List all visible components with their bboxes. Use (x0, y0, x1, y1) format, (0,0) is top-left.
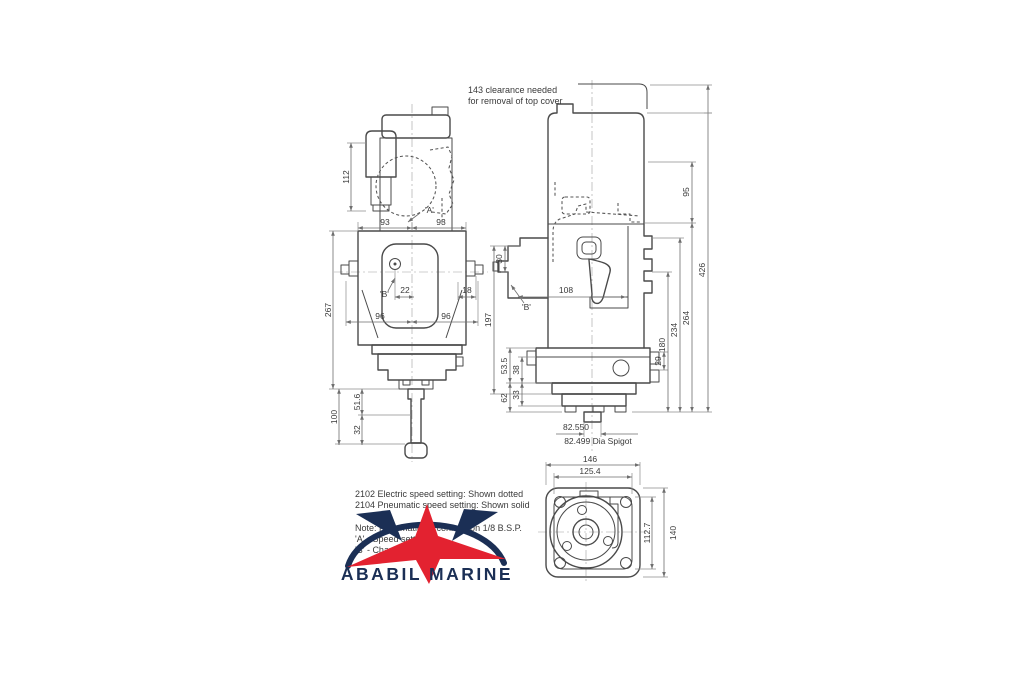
notes-line2: 2104 Pneumatic speed setting: Shown soli… (355, 500, 530, 510)
side-ext-left-lower (506, 348, 562, 412)
front-shaft-cap (405, 443, 427, 458)
side-label-234: 234 (669, 323, 679, 337)
bottom-bolt-hole-1 (578, 506, 587, 515)
side-label-29: 29 (653, 356, 663, 366)
front-label-112: 112 (341, 170, 351, 184)
front-left-pin (341, 265, 349, 274)
side-label-264: 264 (681, 311, 691, 325)
front-label-96-right: 96 (441, 311, 451, 321)
front-label-ref-b: 'B' (380, 289, 389, 299)
side-flange (536, 348, 650, 383)
side-lower-housing-lower (562, 394, 626, 406)
front-label-267: 267 (323, 303, 333, 317)
side-sight-boss-inner (582, 242, 596, 254)
front-base-flange (372, 345, 462, 354)
front-right-pin (475, 265, 483, 274)
front-stepped-base (378, 354, 456, 380)
front-pneumatic-cylinder-foot (373, 205, 389, 211)
watermark-logo: ABABIL MARINE (341, 504, 513, 584)
side-label-spigot-lower: 82.499 Dia Spigot (564, 436, 632, 446)
bottom-corner-hole-tr (621, 497, 632, 508)
side-foot-3 (615, 406, 626, 412)
side-label-30: 30 (494, 254, 504, 264)
front-label-93-right: 93 (436, 217, 446, 227)
side-right-lug-lower (650, 370, 659, 382)
front-ext-bottom (335, 415, 411, 444)
front-top-cover (382, 115, 450, 138)
front-plate-lug-right (422, 380, 429, 385)
front-plate-lug-left (403, 380, 410, 385)
side-lower-housing-upper (552, 383, 636, 394)
watermark-brand-text: ABABIL MARINE (341, 564, 513, 584)
side-sight-boss (577, 237, 601, 259)
front-label-32: 32 (352, 425, 362, 435)
side-label-108: 108 (559, 285, 573, 295)
clearance-note: 143 clearance needed for removal of top … (468, 85, 563, 106)
side-dashed-step (618, 203, 640, 222)
bottom-label-140: 140 (668, 526, 678, 540)
bottom-corner-hole-bl (555, 558, 566, 569)
front-pad-port-center (394, 263, 397, 266)
notes-line1: 2102 Electric speed setting: Shown dotte… (355, 489, 523, 499)
side-left-lug (527, 351, 536, 365)
drawing-page: 112 93 93 267 22 18 96 96 51.6 100 32 'A… (0, 0, 1024, 677)
front-label-96-left: 96 (375, 311, 385, 321)
front-top-tab (432, 107, 448, 115)
front-base-tab (456, 357, 463, 366)
front-label-51-6: 51.6 (352, 393, 362, 410)
side-foot-1 (565, 406, 576, 412)
front-label-18: 18 (462, 285, 472, 295)
side-label-62: 62 (499, 393, 509, 403)
front-pneumatic-cylinder-stem (371, 177, 391, 205)
bottom-bolt-hole-3 (604, 537, 613, 546)
clearance-note-line2: for removal of top cover (468, 96, 563, 106)
front-label-93-left: 93 (380, 217, 390, 227)
front-ref-b-arrow (388, 278, 395, 291)
front-label-ref-a: 'A' (425, 205, 434, 215)
side-flange-port (613, 360, 629, 376)
side-ref-b-arrow (511, 285, 524, 303)
front-label-100: 100 (329, 410, 339, 424)
front-label-22: 22 (400, 285, 410, 295)
bottom-corner-hole-br (621, 558, 632, 569)
side-label-33: 33 (511, 390, 521, 400)
side-label-197: 197 (483, 313, 493, 327)
bottom-label-146: 146 (583, 454, 597, 464)
side-label-180: 180 (657, 338, 667, 352)
side-label-38: 38 (511, 365, 521, 375)
technical-drawing-canvas: 112 93 93 267 22 18 96 96 51.6 100 32 'A… (0, 0, 1024, 677)
front-drive-shaft (408, 389, 424, 443)
side-dashed-box (562, 197, 590, 214)
front-left-stub (349, 261, 358, 276)
side-label-spigot-upper: 82.550 (563, 422, 589, 432)
bottom-bolt-hole-2 (563, 542, 572, 551)
side-label-426: 426 (697, 263, 707, 277)
front-ext-93 (358, 222, 466, 231)
front-view: 112 93 93 267 22 18 96 96 51.6 100 32 'A… (323, 104, 488, 462)
side-label-53-5: 53.5 (499, 357, 509, 374)
bottom-corner-hole-tl (555, 497, 566, 508)
side-spigot (584, 412, 601, 422)
side-phantom-cover (578, 84, 647, 109)
side-view: 30 197 108 53.5 38 62 33 29 180 234 95 2… (483, 80, 712, 452)
side-label-95: 95 (681, 187, 691, 197)
front-ref-a-arrow (408, 213, 420, 222)
side-label-ref-b: 'B' (522, 302, 531, 312)
side-foot-2 (593, 406, 604, 412)
side-connection-block (498, 238, 548, 298)
bottom-label-112-7: 112.7 (642, 522, 652, 543)
front-ext-267 (329, 231, 399, 389)
side-main-body (548, 104, 652, 348)
side-lever-bar (590, 297, 628, 308)
front-right-stub (466, 261, 475, 276)
side-dashed-outline (553, 204, 640, 262)
clearance-note-line1: 143 clearance needed (468, 85, 557, 95)
bottom-label-125-4: 125.4 (579, 466, 601, 476)
bottom-view: 146 125.4 112.7 140 (538, 454, 678, 582)
